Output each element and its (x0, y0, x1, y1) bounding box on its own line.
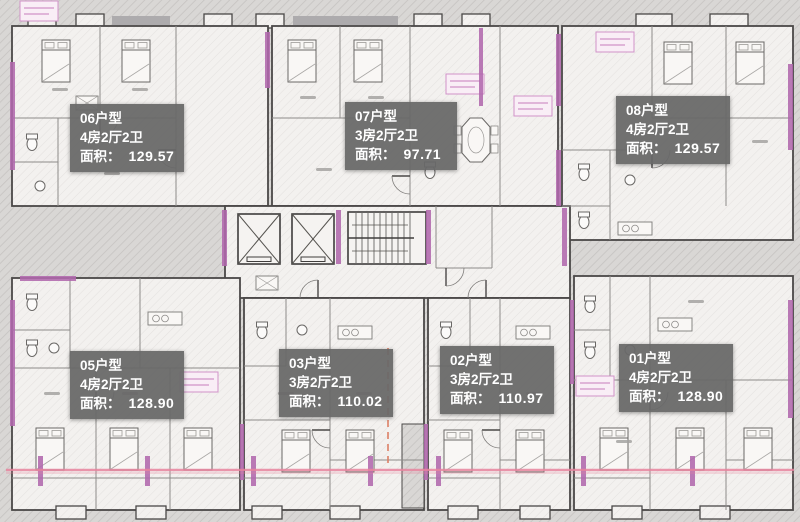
unit-area: 面积：128.90 (629, 387, 723, 406)
dimension-tag (514, 96, 552, 116)
unit-rooms: 3房2厅2卫 (355, 126, 447, 145)
unit-code: 03户型 (289, 354, 383, 373)
unit-rooms: 3房2厅2卫 (289, 373, 383, 392)
dimension-tag (446, 74, 484, 94)
toilet-icon (585, 296, 596, 313)
unit-rooms: 4房2厅2卫 (626, 120, 720, 139)
unit-code: 07户型 (355, 107, 447, 126)
bed-icon (288, 40, 316, 82)
mailbox-icon (256, 276, 278, 290)
bed-icon (110, 428, 138, 470)
room-text-smudge (300, 96, 316, 99)
toilet-icon (441, 322, 452, 339)
unit-code: 06户型 (80, 109, 174, 128)
elevator-icon (292, 214, 334, 264)
toilet-icon (27, 340, 38, 357)
sink-icon (625, 175, 635, 185)
unit-code: 02户型 (450, 351, 544, 370)
bed-icon (516, 430, 544, 472)
room-text-smudge (104, 172, 120, 175)
bed-icon (122, 40, 150, 82)
room-text-smudge (616, 440, 632, 443)
sink-icon (35, 181, 45, 191)
sink-icon (297, 325, 307, 335)
unit-label-06: 06户型 4房2厅2卫 面积：129.57 (70, 104, 184, 172)
bed-icon (354, 40, 382, 82)
kitchen-counter-icon (658, 318, 692, 331)
room-text-smudge (368, 96, 384, 99)
unit-rooms: 3房2厅2卫 (450, 370, 544, 389)
toilet-icon (27, 294, 38, 311)
room-text-smudge (316, 168, 332, 171)
kitchen-counter-icon (618, 222, 652, 235)
stairs-icon (348, 212, 426, 264)
unit-label-05: 05户型 4房2厅2卫 面积：128.90 (70, 351, 184, 419)
bed-icon (736, 42, 764, 84)
bed-icon (282, 430, 310, 472)
bed-icon (444, 430, 472, 472)
unit-area: 面积：129.57 (626, 139, 720, 158)
floor-plan: 06户型 4房2厅2卫 面积：129.57 07户型 3房2厅2卫 面积：97.… (0, 0, 800, 522)
toilet-icon (27, 134, 38, 151)
unit-label-07: 07户型 3房2厅2卫 面积：97.71 (345, 102, 457, 170)
unit-label-02: 02户型 3房2厅2卫 面积：110.97 (440, 346, 554, 414)
bed-icon (42, 40, 70, 82)
bed-icon (744, 428, 772, 470)
unit-code: 05户型 (80, 356, 174, 375)
dimension-tag (596, 32, 634, 52)
room-text-smudge (752, 140, 768, 143)
room-text-smudge (132, 88, 148, 91)
bed-icon (600, 428, 628, 470)
light-shaft (402, 424, 424, 508)
unit-code: 08户型 (626, 101, 720, 120)
unit-code: 01户型 (629, 349, 723, 368)
room-text-smudge (688, 300, 704, 303)
toilet-icon (257, 322, 268, 339)
elevator-icon (238, 214, 280, 264)
kitchen-counter-icon (516, 326, 550, 339)
sink-icon (49, 343, 59, 353)
unit-area: 面积：110.02 (289, 392, 383, 411)
unit-label-01: 01户型 4房2厅2卫 面积：128.90 (619, 344, 733, 412)
unit-area: 面积：97.71 (355, 145, 447, 164)
unit-label-08: 08户型 4房2厅2卫 面积：129.57 (616, 96, 730, 164)
dimension-tag (20, 1, 58, 21)
unit-rooms: 4房2厅2卫 (80, 128, 174, 147)
toilet-icon (585, 342, 596, 359)
dimension-tag (576, 376, 614, 396)
toilet-icon (579, 164, 590, 181)
toilet-icon (579, 212, 590, 229)
kitchen-counter-icon (338, 326, 372, 339)
unit-area: 面积：128.90 (80, 394, 174, 413)
kitchen-counter-icon (148, 312, 182, 325)
balcony-roof-strip (112, 16, 170, 25)
unit-area: 面积：129.57 (80, 147, 174, 166)
floor-plan-svg (0, 0, 800, 522)
room-text-smudge (44, 392, 60, 395)
balcony-roof-strip (293, 16, 398, 25)
dimension-tag (180, 372, 218, 392)
bed-icon (664, 42, 692, 84)
unit-rooms: 4房2厅2卫 (629, 368, 723, 387)
bed-icon (184, 428, 212, 470)
unit-label-03: 03户型 3房2厅2卫 面积：110.02 (279, 349, 393, 417)
unit-area: 面积：110.97 (450, 389, 544, 408)
unit-rooms: 4房2厅2卫 (80, 375, 174, 394)
room-text-smudge (52, 88, 68, 91)
